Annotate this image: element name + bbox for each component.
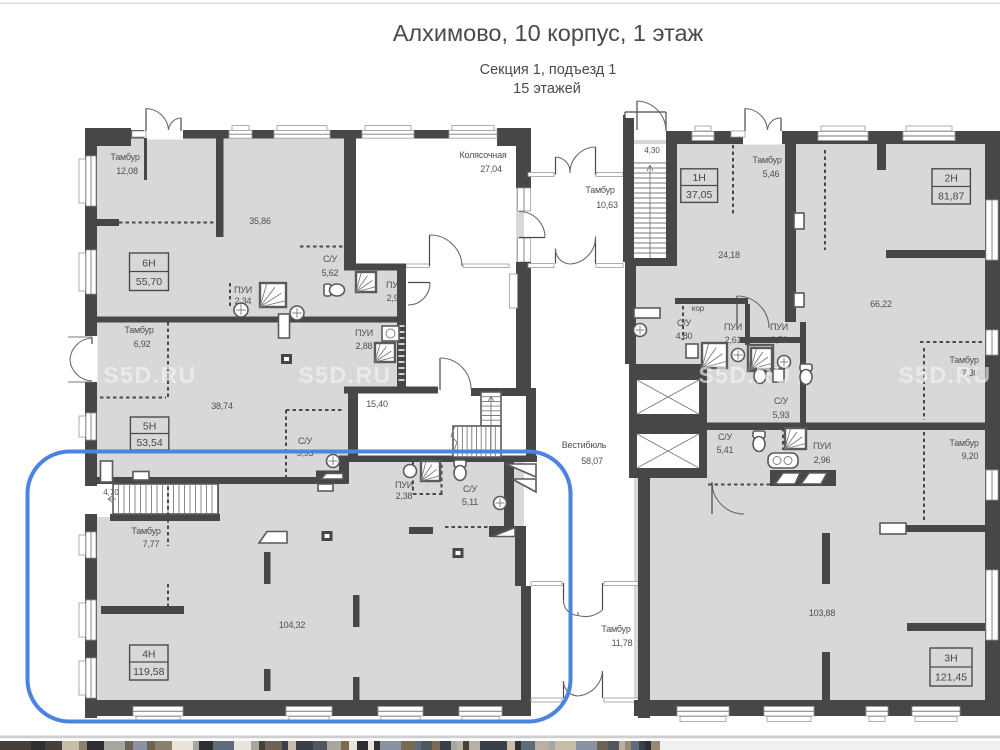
svg-text:ПУИ: ПУИ: [770, 322, 788, 332]
svg-text:6Н: 6Н: [142, 257, 155, 269]
svg-text:2,38: 2,38: [396, 491, 413, 501]
svg-text:7,77: 7,77: [143, 539, 160, 549]
svg-text:3Н: 3Н: [944, 653, 957, 665]
svg-text:Секция 1, подъезд 1: Секция 1, подъезд 1: [480, 62, 617, 78]
svg-text:2Н: 2Н: [944, 173, 957, 185]
svg-text:2,91: 2,91: [387, 293, 404, 303]
svg-text:S5D.RU: S5D.RU: [698, 362, 791, 388]
svg-text:58,07: 58,07: [581, 456, 603, 466]
svg-text:Колясочная: Колясочная: [459, 150, 506, 160]
svg-text:5,41: 5,41: [717, 445, 734, 455]
svg-text:ПУИ: ПУИ: [813, 441, 831, 451]
svg-text:24,18: 24,18: [718, 250, 740, 260]
svg-text:ПУИ: ПУИ: [395, 480, 413, 490]
svg-text:2,34: 2,34: [235, 296, 252, 306]
svg-text:11,78: 11,78: [612, 638, 633, 648]
svg-text:4,80: 4,80: [676, 331, 693, 341]
svg-text:5,93: 5,93: [773, 410, 790, 420]
svg-text:15 этажей: 15 этажей: [513, 81, 581, 97]
svg-text:Тамбур: Тамбур: [601, 624, 631, 634]
svg-text:55,70: 55,70: [136, 276, 162, 288]
svg-text:ПУИ: ПУИ: [355, 328, 373, 338]
svg-text:ПУИ: ПУИ: [234, 285, 252, 295]
svg-text:Тамбур: Тамбур: [752, 155, 782, 165]
svg-text:4,70: 4,70: [103, 488, 119, 497]
svg-text:ПУИ: ПУИ: [724, 322, 742, 332]
svg-text:12,08: 12,08: [116, 166, 138, 176]
svg-text:С/У: С/У: [298, 436, 313, 446]
svg-text:кор: кор: [692, 304, 705, 313]
svg-text:119,58: 119,58: [133, 666, 164, 678]
svg-text:Тамбур: Тамбур: [110, 152, 140, 162]
svg-text:S5D.RU: S5D.RU: [898, 362, 991, 388]
svg-text:103,88: 103,88: [809, 608, 836, 618]
svg-text:4,30: 4,30: [644, 146, 660, 155]
svg-text:81,87: 81,87: [938, 190, 964, 202]
svg-text:5,46: 5,46: [763, 169, 780, 179]
svg-text:Тамбур: Тамбур: [585, 185, 615, 195]
svg-text:С/У: С/У: [677, 318, 692, 328]
svg-text:Тамбур: Тамбур: [949, 438, 979, 448]
svg-text:38,74: 38,74: [211, 401, 233, 411]
svg-text:Алхимово, 10 корпус, 1 этаж: Алхимово, 10 корпус, 1 этаж: [393, 20, 704, 46]
svg-text:35,86: 35,86: [249, 216, 271, 226]
svg-text:37,05: 37,05: [686, 189, 712, 201]
svg-text:С/У: С/У: [718, 432, 733, 442]
svg-text:4Н: 4Н: [142, 649, 155, 661]
svg-text:9,20: 9,20: [962, 451, 979, 461]
svg-text:53,54: 53,54: [136, 437, 162, 449]
svg-text:2,96: 2,96: [814, 455, 831, 465]
svg-text:Тамбур: Тамбур: [124, 325, 154, 335]
svg-text:66,22: 66,22: [870, 299, 892, 309]
svg-text:С/У: С/У: [774, 396, 789, 406]
svg-text:5Н: 5Н: [143, 420, 156, 432]
svg-text:1Н: 1Н: [692, 172, 705, 184]
svg-text:Вестибюль: Вестибюль: [562, 440, 607, 450]
svg-text:S5D.RU: S5D.RU: [298, 362, 391, 388]
svg-text:ПУИ: ПУИ: [386, 280, 404, 290]
svg-text:2,88: 2,88: [356, 341, 373, 351]
svg-text:6,92: 6,92: [134, 339, 151, 349]
svg-text:27,04: 27,04: [480, 164, 502, 174]
svg-text:10,63: 10,63: [596, 200, 618, 210]
svg-text:Тамбур: Тамбур: [131, 526, 161, 536]
svg-text:5,62: 5,62: [322, 268, 339, 278]
svg-text:121,45: 121,45: [935, 672, 967, 684]
svg-text:2,72: 2,72: [771, 335, 788, 345]
svg-text:2,61: 2,61: [725, 335, 742, 345]
svg-text:5,11: 5,11: [462, 497, 478, 507]
svg-text:С/У: С/У: [463, 484, 478, 494]
svg-text:С/У: С/У: [323, 254, 338, 264]
svg-text:104,32: 104,32: [279, 620, 306, 630]
svg-text:15,40: 15,40: [366, 399, 388, 409]
svg-text:S5D.RU: S5D.RU: [103, 362, 196, 388]
